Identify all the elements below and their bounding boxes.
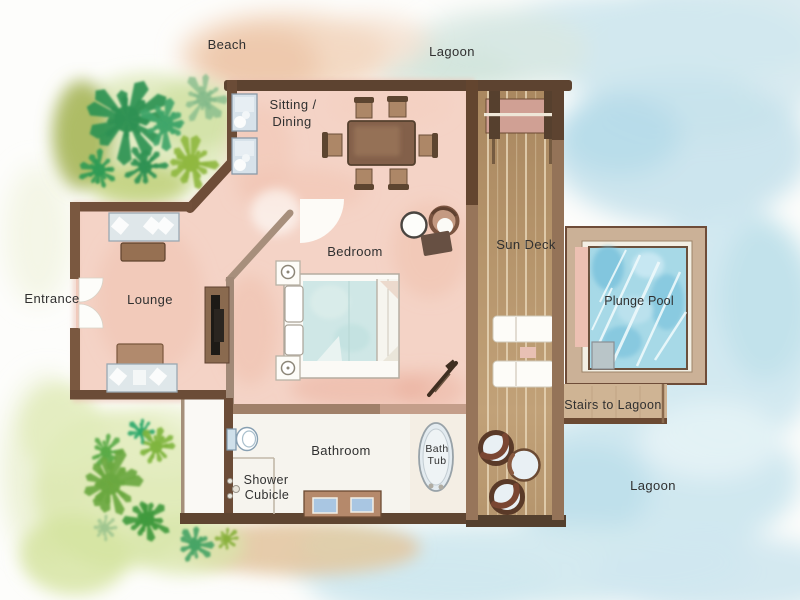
svg-text:Shower: Shower [244, 473, 289, 487]
svg-text:Bedroom: Bedroom [327, 244, 383, 259]
svg-text:Bathroom: Bathroom [311, 443, 371, 458]
svg-text:Stairs to Lagoon: Stairs to Lagoon [564, 398, 661, 412]
svg-text:Lagoon: Lagoon [630, 478, 676, 493]
svg-text:Bath: Bath [425, 443, 448, 455]
svg-text:Beach: Beach [208, 37, 247, 52]
svg-text:Lagoon: Lagoon [429, 44, 475, 59]
svg-text:Dining: Dining [272, 114, 311, 129]
svg-text:Entrance: Entrance [24, 291, 79, 306]
svg-text:Cubicle: Cubicle [245, 488, 290, 502]
svg-text:Lounge: Lounge [127, 292, 173, 307]
svg-text:Plunge Pool: Plunge Pool [604, 294, 674, 308]
svg-text:Sun Deck: Sun Deck [496, 237, 556, 252]
svg-text:Tub: Tub [428, 455, 447, 467]
svg-text:Sitting /: Sitting / [270, 97, 317, 112]
